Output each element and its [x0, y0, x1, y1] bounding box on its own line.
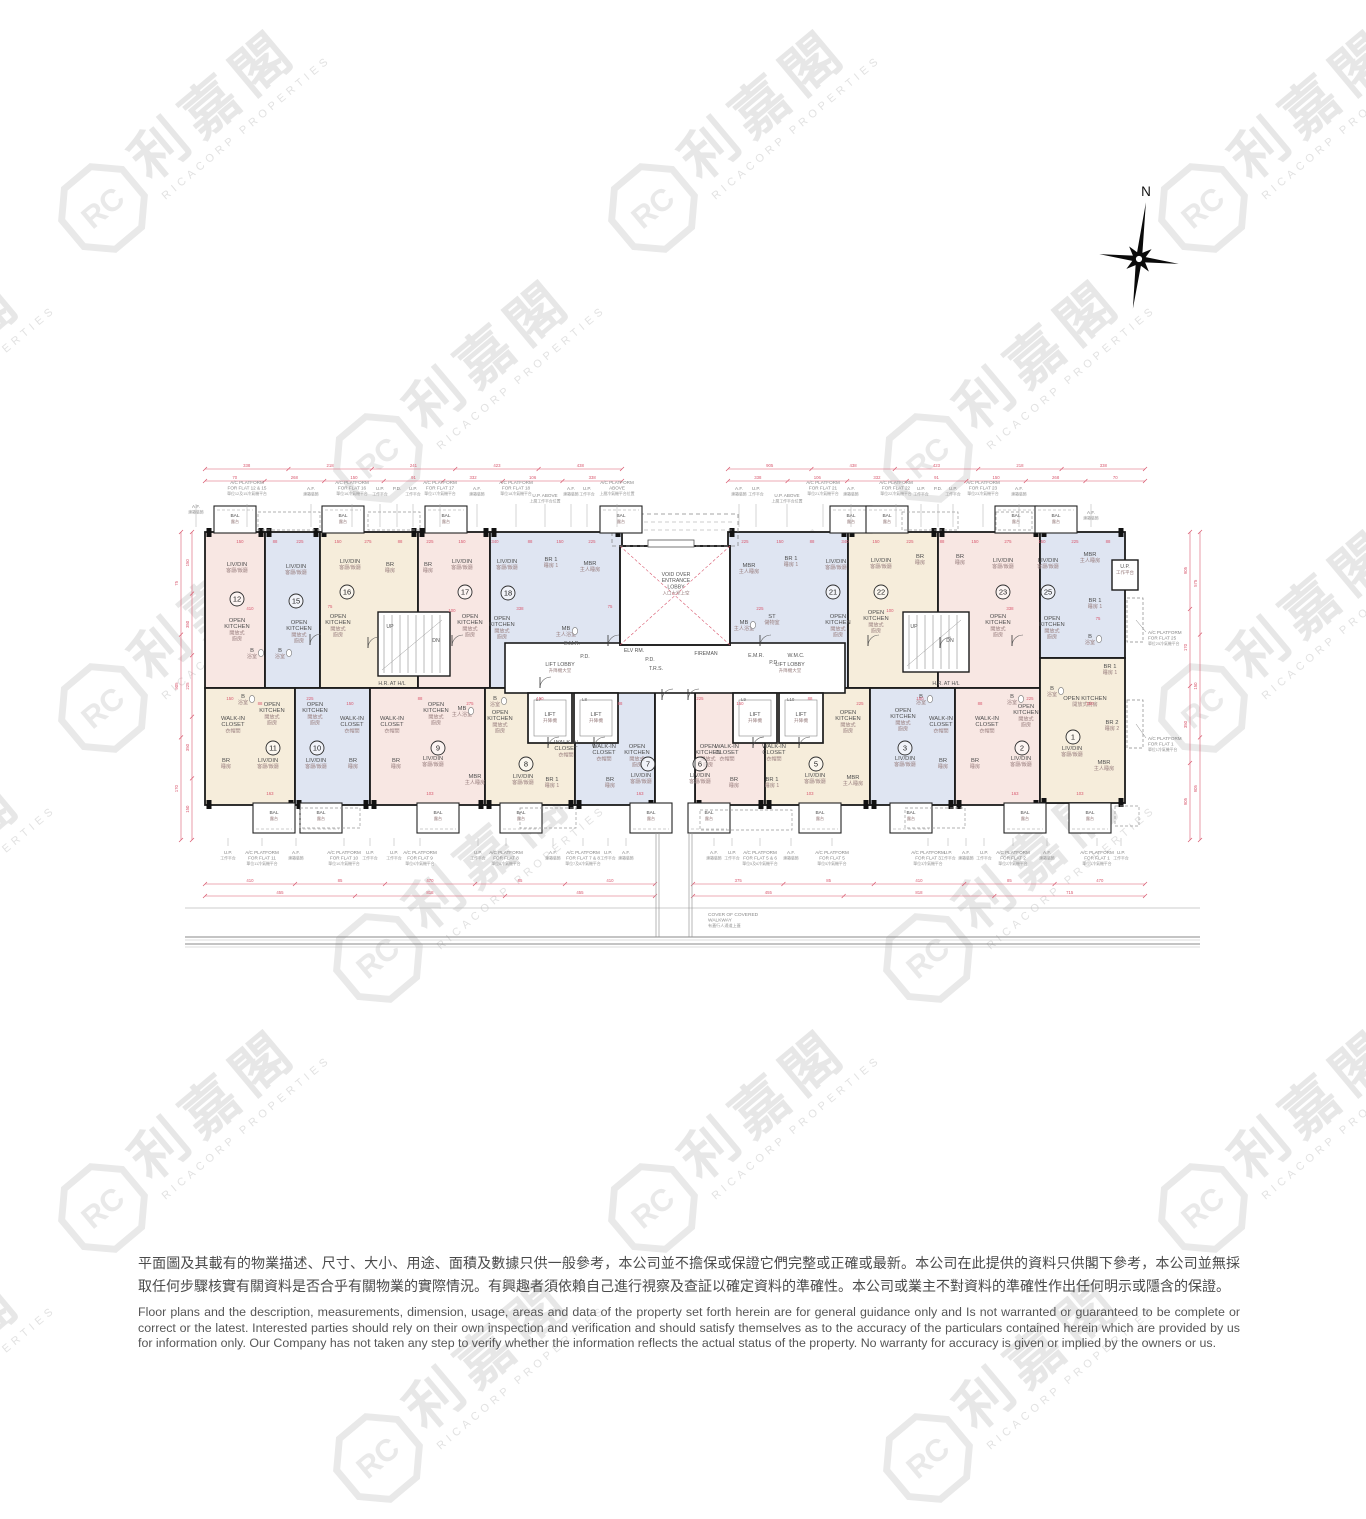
annotation: A.F.建築裝飾 [618, 850, 634, 860]
room-label: LIV/DIN客廳/飯廳 [1037, 558, 1059, 570]
balcony-label: BAL露台 [704, 810, 713, 821]
flat-number: 23 [999, 588, 1007, 597]
dim-value: 150 [971, 539, 979, 544]
wall-pier [759, 800, 764, 809]
flat-number: 16 [343, 588, 351, 597]
dim-value: 225 [756, 606, 764, 611]
dim-value: 225 [1026, 696, 1034, 701]
toilet-fixture-icon [1018, 695, 1023, 702]
dim-value: 905 [1183, 566, 1188, 574]
dim-value: 163 [266, 791, 274, 796]
annotation: U.P.工作平台 [386, 850, 402, 860]
dim-value: 905 [1193, 784, 1198, 792]
dim-value: 455 [765, 890, 773, 895]
dim-value: 163 [1011, 791, 1019, 796]
annotation: U.P.工作平台 [405, 486, 421, 496]
staircase [378, 612, 450, 676]
toilet-fixture-icon [286, 649, 291, 656]
dim-value: 338 [516, 606, 524, 611]
dim-value: 170 [174, 784, 179, 792]
dim-value: 150 [346, 701, 354, 706]
dim-value: 275 [466, 701, 474, 706]
dim-value: 455 [576, 890, 584, 895]
toilet-fixture-icon [572, 627, 577, 634]
flat-number: 18 [504, 589, 512, 598]
annotation: A/C PLATFORMFOR FLAT 16單位16冷氣機平台 [335, 480, 369, 496]
wall-pier [314, 528, 319, 537]
dim-value: 275 [1004, 539, 1012, 544]
annotation: A/C PLATFORMFOR FLAT 8單位8冷氣機平台 [489, 850, 523, 866]
dim-value: 88 [618, 701, 623, 706]
corridor [655, 688, 695, 805]
core-label: E.M.R. [564, 641, 580, 647]
dim-value: 340 [491, 539, 499, 544]
annotation: A.F.建築裝飾 [783, 850, 799, 860]
dim-value: 225 [741, 539, 749, 544]
annotation: A/C PLATFORMFOR FLAT 23單位23冷氣機平台 [966, 480, 1000, 496]
room-label: BR睡房 [385, 562, 395, 574]
annotation: A.F.建築裝飾 [731, 486, 747, 496]
dim-value: 150 [334, 539, 342, 544]
room-label: LIV/DIN客廳/飯廳 [422, 756, 444, 768]
flat-number: 6 [698, 760, 702, 769]
platform-dashed [258, 512, 320, 530]
flat-number: 15 [292, 597, 300, 606]
annotation: U.P.工作平台 [372, 486, 388, 496]
dim-value: 218 [1016, 463, 1024, 468]
toilet-fixture-icon [258, 649, 263, 656]
room-label: LIV/DIN客廳/飯廳 [339, 559, 361, 571]
annotation: A/C PLATFORMFOR FLAT 1單位1冷氣機平台 [1148, 736, 1182, 752]
annotation: A/C PLATFORMFOR FLAT 21單位21冷氣機平台 [806, 480, 840, 496]
dim-value: 375 [735, 878, 743, 883]
dim-value: 88 [258, 701, 263, 706]
disclaimer: 平面圖及其載有的物業描述、尺寸、大小、用途、面積及數據只供一般參考，本公司並不擔… [138, 1252, 1240, 1352]
annotation: A/C PLATFORMFOR FLAT 11單位11冷氣機平台 [245, 850, 279, 866]
dim-value: 268 [1052, 475, 1060, 480]
room-label: BR 2睡房 2 [1105, 720, 1120, 732]
toilet-fixture-icon [1058, 687, 1063, 694]
dim-value: 163 [636, 791, 644, 796]
core-label: ELV RM. [624, 648, 644, 654]
flat-number: 1 [1071, 733, 1075, 742]
lift-label: LIFT升降機 [589, 712, 603, 724]
annotation: U.P.工作平台 [945, 486, 961, 496]
annotation: U.P.工作平台 [579, 486, 595, 496]
balcony-label: BAL露台 [516, 810, 525, 821]
room-label: BR 1睡房 1 [1088, 598, 1103, 610]
dim-value: 818 [426, 890, 434, 895]
annotation: A/C PLATFORMFOR FLAT 7 & 8單位7及8冷氣機平台 [565, 850, 601, 866]
room-label: BR 1睡房 1 [1103, 664, 1118, 676]
annotation: U.P.工作平台 [470, 850, 486, 860]
core-label: DN [432, 638, 440, 644]
annotation: U.P.工作平台 [600, 850, 616, 860]
dim-value: 241 [410, 463, 418, 468]
dim-value: 75 [608, 604, 613, 609]
dim-value: 410 [246, 606, 254, 611]
walkway-label: COVER OF COVEREDWALKWAY有蓋行人通道上蓋 [708, 912, 759, 928]
dim-value: 85 [518, 878, 523, 883]
core-label: E.M.R. [748, 653, 764, 659]
dim-value: 88 [1106, 539, 1111, 544]
balcony-label: BAL露台 [882, 513, 891, 524]
toilet-fixture-icon [501, 697, 506, 704]
annotation: A/C PLATFORMFOR FLAT 22單位22冷氣機平台 [879, 480, 913, 496]
dim-value: 100 [448, 608, 456, 613]
flat-number: 22 [877, 588, 885, 597]
flat-number: 5 [814, 760, 818, 769]
annotation: A/C PLATFORMFOR FLAT 18單位18冷氣機平台 [499, 480, 533, 496]
room-label: LIV/DIN客廳/飯廳 [226, 562, 248, 574]
unit-3 [870, 688, 955, 805]
flat-number: 3 [903, 744, 907, 753]
dim-value: 103 [426, 791, 434, 796]
room-label: LIV/DIN客廳/飯廳 [257, 758, 279, 770]
dim-value: 150 [458, 539, 466, 544]
ricacorp-logo-icon: RC [317, 1397, 438, 1518]
wall-pier [492, 528, 497, 537]
dim-value: 100 [886, 608, 894, 613]
dim-value: 88 [528, 539, 533, 544]
wall-pier [487, 800, 492, 809]
dim-value: 350 [185, 620, 190, 628]
room-label: LIV/DIN客廳/飯廳 [305, 758, 327, 770]
dim-value: 150 [556, 539, 564, 544]
balcony-label: BAL露台 [1020, 810, 1029, 821]
core-label: W.M.C. [787, 653, 804, 659]
wall-pier [479, 800, 484, 809]
annotation: U.P. ABOVE上層工作平台位置 [771, 493, 802, 503]
core-label: P.D. [769, 660, 778, 666]
dim-value: 218 [327, 463, 335, 468]
dim-value: 423 [493, 463, 501, 468]
flat-number: 10 [313, 744, 321, 753]
room-label: LIV/DIN客廳/飯廳 [689, 773, 711, 785]
annotation: A.F.建築裝飾 [469, 486, 485, 496]
dim-value: 88 [978, 701, 983, 706]
dim-value: 88 [273, 539, 278, 544]
toilet-fixture-icon [927, 695, 932, 702]
balcony-label: BAL露台 [433, 810, 442, 821]
dim-value: 85 [826, 878, 831, 883]
annotation: A/C PLATFORMFOR FLAT 17單位17冷氣機平台 [423, 480, 457, 496]
disclaimer-chinese: 平面圖及其載有的物業描述、尺寸、大小、用途、面積及數據只供一般參考，本公司並不擔… [138, 1252, 1240, 1297]
dim-value: 150 [236, 539, 244, 544]
dim-value: 715 [1066, 890, 1074, 895]
wall-pier [420, 528, 425, 537]
dim-value: 225 [588, 539, 596, 544]
lift-id: L10 [787, 697, 795, 702]
dim-value: 70 [1113, 475, 1118, 480]
wall-pier [484, 528, 489, 537]
dim-value: 85 [1007, 878, 1012, 883]
room-label: LIV/DIN客廳/飯廳 [804, 773, 826, 785]
core-label: H.R. AT H/L [378, 681, 405, 687]
wall-pier [364, 800, 369, 809]
dim-value: 170 [1183, 643, 1188, 651]
annotation: P.D. [934, 486, 942, 491]
core-label: UP [386, 624, 394, 630]
lift-label: LIFT升降機 [748, 712, 762, 724]
unit-12 [205, 532, 265, 688]
dim-value: 340 [841, 539, 849, 544]
svg-text:RC: RC [350, 1430, 407, 1486]
dim-value: 410 [606, 878, 614, 883]
core-label: H.R. AT H/L [932, 681, 959, 687]
annotation: U.P. ABOVE上層工作平台位置 [529, 493, 560, 503]
lift-label: LIFT升降機 [543, 712, 557, 724]
north-label: N [1141, 184, 1151, 199]
balcony-label: BAL露台 [616, 513, 625, 524]
room-label: BR 1睡房 1 [765, 777, 780, 789]
platform-dashed [368, 512, 420, 530]
platform-dashed [902, 512, 958, 530]
dim-value: 410 [246, 878, 254, 883]
toilet-fixture-icon [750, 621, 755, 628]
annotation: U.P.工作平台 [724, 850, 740, 860]
dim-value: 275 [364, 539, 372, 544]
flat-number: 25 [1044, 588, 1052, 597]
dim-value: 103 [1076, 791, 1084, 796]
wall-pier [940, 528, 945, 537]
room-label: LIV/DIN客廳/飯廳 [496, 559, 518, 571]
annotation: A/C PLATFORMFOR FLAT 10單位10冷氣機平台 [327, 850, 361, 866]
annotation: U.P.工作平台 [362, 850, 378, 860]
flat-number: 7 [646, 760, 650, 769]
core-label: FIREMAN [694, 651, 718, 657]
dim-value: 905 [766, 463, 774, 468]
dim-value: 438 [850, 463, 858, 468]
dim-value: 423 [933, 463, 941, 468]
room-label: LIV/DIN客廳/飯廳 [512, 774, 534, 786]
dim-value: 225 [856, 701, 864, 706]
wall-pier [267, 528, 272, 537]
flat-number: 8 [524, 760, 528, 769]
core-label: LIFT LOBBY升降機大堂 [775, 662, 805, 674]
room-label: LIV/DIN客廳/飯廳 [992, 558, 1014, 570]
room-label: LIV/DIN客廳/飯廳 [1010, 756, 1032, 768]
dim-value: 75 [1096, 616, 1101, 621]
annotation: A/C PLATFORMFOR FLAT 5 & 6單位5及6冷氣機平台 [742, 850, 778, 866]
wall-pier [412, 528, 417, 537]
wall-pier [207, 800, 212, 809]
annotation: A.F.建築裝飾 [303, 486, 319, 496]
dim-value: 225 [696, 696, 704, 701]
dim-value: 103 [806, 791, 814, 796]
room-label: BR睡房 [955, 554, 965, 566]
room-label: LIV/DIN客廳/飯廳 [630, 773, 652, 785]
dim-value: 225 [185, 682, 190, 690]
dim-value: 91 [411, 475, 416, 480]
dim-value: 410 [915, 878, 923, 883]
room-label: BR 1睡房 1 [545, 777, 560, 789]
toilet-fixture-icon [468, 707, 473, 714]
room-label: LIV/DIN客廳/飯廳 [870, 558, 892, 570]
dim-value: 338 [1100, 463, 1108, 468]
annotation: A.F.建築裝飾 [545, 850, 561, 860]
room-label: LIV/DIN客廳/飯廳 [825, 559, 847, 571]
balcony-label: BAL露台 [316, 810, 325, 821]
room-label: BR睡房 [605, 777, 615, 789]
room-label: BR睡房 [729, 777, 739, 789]
dim-value: 470 [1096, 878, 1104, 883]
room-label: LIV/DIN客廳/飯廳 [285, 564, 307, 576]
dim-value: 150 [1086, 701, 1094, 706]
dim-value: 225 [306, 696, 314, 701]
dim-value: 150 [736, 701, 744, 706]
flat-number: 12 [233, 595, 241, 604]
dim-value: 150 [776, 539, 784, 544]
room-label: BR睡房 [423, 562, 433, 574]
dim-value: 268 [291, 475, 299, 480]
wall-pier [767, 800, 772, 809]
room-label: BR睡房 [915, 554, 925, 566]
dim-value: 350 [1183, 720, 1188, 728]
core-label: P.D. [645, 657, 654, 663]
dim-value: 75 [174, 580, 179, 585]
dim-value: 225 [426, 539, 434, 544]
dim-value: 225 [296, 539, 304, 544]
dim-value: 91 [934, 475, 939, 480]
annotation: A.F.建築裝飾 [563, 486, 579, 496]
dim-value: 575 [1193, 579, 1198, 587]
dim-value: 150 [536, 696, 544, 701]
disclaimer-english: Floor plans and the description, measure… [138, 1305, 1240, 1352]
annotation: A/C PLATFORMFOR FLAT 1單位1冷氣機平台 [1080, 850, 1114, 866]
dim-value: 88 [808, 696, 813, 701]
wall-pier [259, 528, 264, 537]
annotation: A.F.建築裝飾 [1011, 486, 1027, 496]
wall-pier [577, 800, 582, 809]
dim-value: 338 [589, 475, 597, 480]
dim-value: 350 [185, 743, 190, 751]
balcony-label: BAL露台 [1085, 810, 1094, 821]
annotation: A/C PLATFORMFOR FLAT 2單位2冷氣機平台 [996, 850, 1030, 866]
annotation: U.P.工作平台 [913, 486, 929, 496]
balcony-label: BAL露台 [646, 810, 655, 821]
lift-id: L8 [582, 697, 587, 702]
core-label: P.D. [580, 654, 589, 660]
dim-value: 818 [915, 890, 923, 895]
core-label: UP [910, 624, 918, 630]
room-label: BR 1睡房 1 [544, 557, 559, 569]
balcony-label: BAL露台 [1051, 513, 1060, 524]
dim-value: 150 [916, 696, 924, 701]
dim-value: 338 [1006, 606, 1014, 611]
annotation: A.F.建築裝飾 [843, 486, 859, 496]
unit-15 [265, 532, 320, 688]
balcony-label: BAL露台 [230, 513, 239, 524]
platform-dashed [1115, 806, 1139, 826]
svg-text:RC: RC [900, 1430, 957, 1486]
balcony-label: BAL露台 [906, 810, 915, 821]
room-label: LIV/DIN客廳/飯廳 [894, 756, 916, 768]
dim-value: 150 [872, 539, 880, 544]
flat-number: 2 [1020, 744, 1024, 753]
dim-value: 75 [328, 604, 333, 609]
wall-pier [372, 800, 377, 809]
annotation: A/C PLATFORMFOR FLAT 25單位25冷氣機平台 [1148, 630, 1182, 646]
room-label: BR睡房 [391, 758, 401, 770]
ac-platform-box [1127, 598, 1143, 642]
annotation: P.D. [393, 486, 401, 491]
dim-value: 88 [810, 539, 815, 544]
flat-number: 11 [269, 744, 277, 753]
room-label: BR睡房 [938, 758, 948, 770]
annotation: A/C PLATFORMFOR FLAT 9單位9冷氣機平台 [403, 850, 437, 866]
core-label: LIFT LOBBY升降機大堂 [545, 662, 575, 674]
north-arrow-icon [1099, 202, 1178, 308]
toilet-fixture-icon [1096, 635, 1101, 642]
room-label: BR睡房 [970, 758, 980, 770]
annotation: U.P.工作平台 [748, 486, 764, 496]
wall-pier [730, 528, 735, 537]
lift-label: LIFT升降機 [794, 712, 808, 724]
annotation: A.F.建築裝飾 [1039, 850, 1055, 860]
annotation: U.P.工作平台 [220, 850, 236, 860]
room-label: BR睡房 [348, 758, 358, 770]
dim-value: 470 [426, 878, 434, 883]
room-label: BR睡房 [221, 758, 231, 770]
dim-value: 150 [1193, 682, 1198, 690]
unit-11 [205, 688, 295, 805]
dim-value: 88 [418, 696, 423, 701]
dim-value: 905 [1183, 797, 1188, 805]
floor-plan: LIFT升降機L7LIFT升降機L8LIFT升降機L9LIFT升降機L10BAL… [0, 0, 1366, 1366]
dim-value: 150 [185, 559, 190, 567]
flat-number: 21 [829, 588, 837, 597]
dim-value: 150 [226, 696, 234, 701]
wall-pier [864, 800, 869, 809]
annotation: A/C PLATFORMFOR FLAT 5單位5冷氣機平台 [815, 850, 849, 866]
dim-value: 455 [276, 890, 284, 895]
dim-value: 332 [469, 475, 477, 480]
dim-value: 88 [398, 539, 403, 544]
core-label: T.R.S. [649, 666, 663, 672]
balcony-label: BAL露台 [1011, 513, 1020, 524]
wall-pier [207, 528, 212, 537]
annotation: A.F.建築裝飾 [288, 850, 304, 860]
annotation: A/C PLATFORMABOVE上層冷氣機平台位置 [599, 480, 634, 496]
staircase [903, 612, 969, 672]
balcony-label: BAL露台 [441, 513, 450, 524]
ricacorp-logo-icon: RC [867, 1397, 988, 1518]
toilet-fixture-icon [249, 695, 254, 702]
annotation: U.P.工作平台 [1113, 850, 1129, 860]
room-label: LIV/DIN客廳/飯廳 [451, 559, 473, 571]
dim-value: 150 [185, 805, 190, 813]
annotation: A.F.建築裝飾 [958, 850, 974, 860]
dim-value: 225 [1071, 539, 1079, 544]
annotation: A/C PLATFORMFOR FLAT 12 & 15單位12及15冷氣機平台 [227, 480, 267, 496]
core-label: DN [946, 638, 954, 644]
flat-number: 9 [436, 744, 440, 753]
ac-platform-box [1127, 700, 1143, 748]
dim-value: 338 [243, 463, 251, 468]
room-label: LIV/DIN客廳/飯廳 [1061, 746, 1083, 758]
dim-value: 905 [174, 682, 179, 690]
wall-pier [872, 800, 877, 809]
dim-value: 225 [906, 539, 914, 544]
wall-pier [932, 528, 937, 537]
balcony-label: BAL露台 [269, 810, 278, 821]
room-label: BR 1睡房 1 [784, 556, 799, 568]
dim-value: 438 [577, 463, 585, 468]
balcony-label: BAL露台 [338, 513, 347, 524]
dim-value: 88 [940, 539, 945, 544]
dim-value: 85 [338, 878, 343, 883]
